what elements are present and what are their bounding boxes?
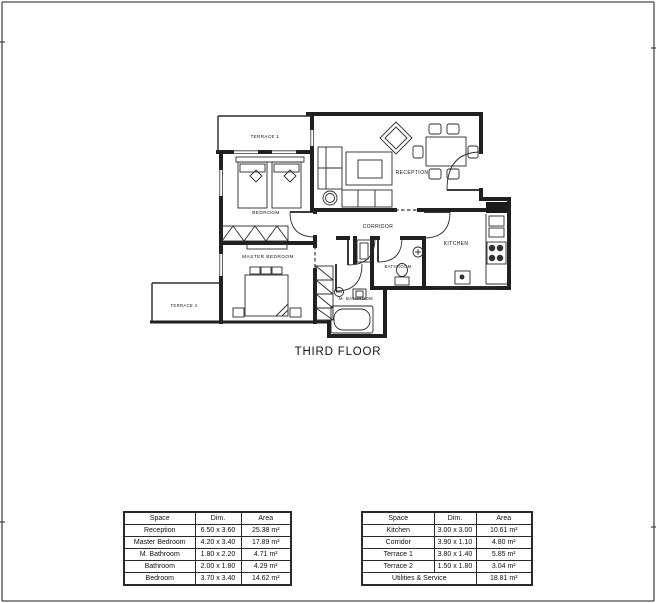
header-space: Space [362, 512, 434, 525]
cell-space: Reception [124, 525, 195, 537]
cell-utilities-area: 18.81 m² [476, 573, 532, 586]
cell-utilities-label: Utilities & Service [362, 573, 476, 586]
table-row: Kitchen 3.00 x 3.00 10.61 m² [362, 525, 532, 537]
cell-dim: 3.90 x 1.10 [434, 537, 476, 549]
header-dim: Dim. [434, 512, 476, 525]
header-space: Space [124, 512, 195, 525]
cell-dim: 3.00 x 3.00 [434, 525, 476, 537]
room-label-corridor: CORRIDOR [363, 224, 393, 230]
room-label-master-bedroom: MASTER BEDROOM [242, 254, 294, 260]
cell-dim: 6.50 x 3.60 [195, 525, 241, 537]
wardrobe-hatch-hall [316, 266, 333, 320]
table-row: M. Bathroom 1.80 x 2.20 4.71 m² [124, 549, 291, 561]
cell-dim: 2.00 x 1.80 [195, 561, 241, 573]
cell-dim: 3.80 x 1.40 [434, 549, 476, 561]
cell-space: M. Bathroom [124, 549, 195, 561]
sheet-frame [0, 2, 656, 601]
cell-area: 3.04 m² [476, 561, 532, 573]
cell-space: Terrace 1 [362, 549, 434, 561]
area-table-right: Space Dim. Area Kitchen 3.00 x 3.00 10.6… [361, 511, 533, 586]
hall-closet [357, 240, 371, 262]
table-row: Terrace 1 3.80 x 1.40 5.85 m² [362, 549, 532, 561]
cell-area: 10.61 m² [476, 525, 532, 537]
table-row: Corridor 3.90 x 1.10 4.80 m² [362, 537, 532, 549]
cell-space: Kitchen [362, 525, 434, 537]
room-label-m-bathroom: M. BATHROOM [339, 296, 373, 301]
cell-space: Corridor [362, 537, 434, 549]
cell-dim: 1.50 x 1.80 [434, 561, 476, 573]
cell-area: 14.62 m² [241, 573, 291, 586]
table-header-row: Space Dim. Area [124, 512, 291, 525]
wardrobe-hatch-bedroom [222, 226, 288, 241]
cell-space: Bedroom [124, 573, 195, 586]
cell-dim: 3.70 x 3.40 [195, 573, 241, 586]
table-row: Bathroom 2.00 x 1.80 4.29 m² [124, 561, 291, 573]
cell-area: 17.89 m² [241, 537, 291, 549]
room-label-kitchen: KITCHEN [444, 241, 469, 247]
cell-dim: 1.80 x 2.20 [195, 549, 241, 561]
header-area: Area [476, 512, 532, 525]
m-bathroom-fixtures [331, 288, 373, 334]
room-label-terrace1: TERRACE 1 [251, 134, 280, 139]
table-row: Master Bedroom 4.20 x 3.40 17.89 m² [124, 537, 291, 549]
cell-space: Bathroom [124, 561, 195, 573]
service-shaft [486, 202, 508, 213]
cell-dim: 4.20 x 3.40 [195, 537, 241, 549]
cell-area: 4.71 m² [241, 549, 291, 561]
room-label-bedroom: BEDROOM [252, 210, 280, 216]
doors [290, 152, 481, 291]
cell-space: Terrace 2 [362, 561, 434, 573]
room-label-bathroom: BATHROOM [384, 264, 411, 269]
room-label-terrace2: TERRACE 2 [170, 303, 197, 308]
area-table-left: Space Dim. Area Reception 6.50 x 3.60 25… [123, 511, 292, 586]
cell-area: 4.80 m² [476, 537, 532, 549]
cell-area: 5.85 m² [476, 549, 532, 561]
cell-area: 25.38 m² [241, 525, 291, 537]
plan-title: THIRD FLOOR [295, 346, 382, 358]
floor-plan: TERRACE 1 BEDROOM MASTER BEDROOM TERRACE… [150, 114, 509, 358]
reception-furniture [318, 122, 478, 207]
table-header-row: Space Dim. Area [362, 512, 532, 525]
table-row: Terrace 2 1.50 x 1.80 3.04 m² [362, 561, 532, 573]
single-beds [236, 157, 304, 208]
table-row: Reception 6.50 x 3.60 25.38 m² [124, 525, 291, 537]
kitchen-fixtures [455, 214, 507, 284]
drawing-sheet: TERRACE 1 BEDROOM MASTER BEDROOM TERRACE… [0, 0, 656, 603]
table-footer-row: Utilities & Service 18.81 m² [362, 573, 532, 586]
header-area: Area [241, 512, 291, 525]
cell-space: Master Bedroom [124, 537, 195, 549]
header-dim: Dim. [195, 512, 241, 525]
room-label-reception: RECEPTION [396, 170, 429, 176]
table-row: Bedroom 3.70 x 3.40 14.62 m² [124, 573, 291, 586]
cell-area: 4.29 m² [241, 561, 291, 573]
floor-plan-svg: TERRACE 1 BEDROOM MASTER BEDROOM TERRACE… [0, 0, 656, 603]
